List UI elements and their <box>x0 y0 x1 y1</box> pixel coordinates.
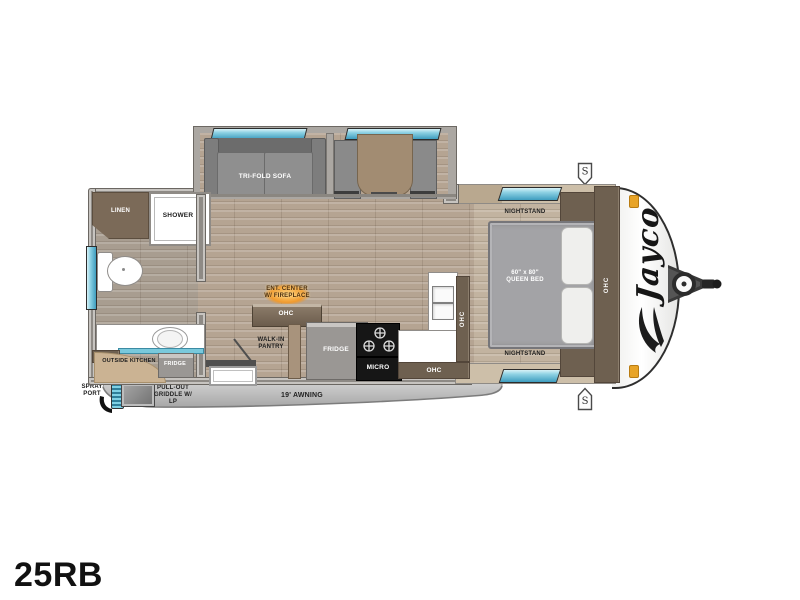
sofa-label: TRI-FOLD SOFA <box>205 173 325 181</box>
outside-fridge-label: FRIDGE <box>158 361 192 367</box>
wall-top-bedroom-dark <box>458 185 502 203</box>
svg-text:S: S <box>582 167 589 178</box>
griddle-label: PULL-OUT GRIDDLE W/ LP <box>150 385 196 406</box>
ent-center-ohc-label: OHC <box>252 310 320 318</box>
stove-cooktop <box>356 323 400 357</box>
ent-center-label: ENT. CENTER W/ FIREPLACE <box>262 286 312 300</box>
nightstand-top-label: NIGHTSTAND <box>492 209 558 216</box>
bird-swoosh-icon <box>630 305 666 357</box>
tongue-hitch <box>660 259 722 309</box>
bedroom-window-bottom <box>499 369 562 383</box>
bed-pillow-bottom <box>561 287 593 344</box>
toilet-bowl <box>107 256 143 286</box>
linen-label: LINEN <box>92 208 149 215</box>
speaker-badge-bottom: S <box>577 387 593 411</box>
queen-bed-type: QUEEN BED <box>490 277 560 284</box>
spray-port-label: SPRAY PORT <box>74 384 110 398</box>
toilet-flush-dot <box>122 268 125 271</box>
nightstand-bottom-label: NIGHTSTAND <box>492 351 558 358</box>
slide-divider-wall <box>326 133 334 196</box>
kitchen-ohc-horizontal-label: OHC <box>398 367 470 375</box>
bath-wall-upper <box>196 194 206 282</box>
kitchen-ohc-vertical: OHC <box>456 276 470 362</box>
sofa-arm-right <box>311 138 326 197</box>
kitchen-sink-top <box>432 286 454 303</box>
entry-steps <box>209 366 257 386</box>
bedroom-ohc-label: OHC <box>604 276 610 292</box>
pantry-label: WALK-IN PANTRY <box>250 337 292 351</box>
bedroom-wardrobe-ohc: OHC <box>594 186 620 383</box>
model-name: 25RB <box>14 556 103 595</box>
dinette-table <box>357 134 413 196</box>
speaker-badge-top: S <box>577 162 593 186</box>
vanity-sink-inner <box>157 330 183 348</box>
queen-bed-size: 60" x 80" <box>490 270 560 277</box>
microwave-label: MICRO <box>356 364 400 372</box>
slide-threshold <box>198 194 456 197</box>
outside-kitchen-label: OUTSIDE KITCHEN <box>100 358 158 364</box>
bathroom-window-left <box>86 246 97 310</box>
queen-bed-label: 60" x 80" QUEEN BED <box>490 270 560 284</box>
linen-cabinet <box>92 192 149 239</box>
pantry-wall <box>288 324 301 379</box>
bedroom-window-top <box>498 187 563 201</box>
awning-label: 19' AWNING <box>252 392 352 400</box>
floorplan-canvas: 19' AWNING SPRAY PORT PULL-OUT GRIDDLE W… <box>0 0 800 600</box>
svg-text:S: S <box>582 396 589 407</box>
kitchen-ohc-vertical-label: OHC <box>460 311 466 327</box>
kitchen-sink-bottom <box>432 303 454 320</box>
kitchen-counter-l <box>398 330 458 364</box>
bed-pillow-top <box>561 227 593 285</box>
